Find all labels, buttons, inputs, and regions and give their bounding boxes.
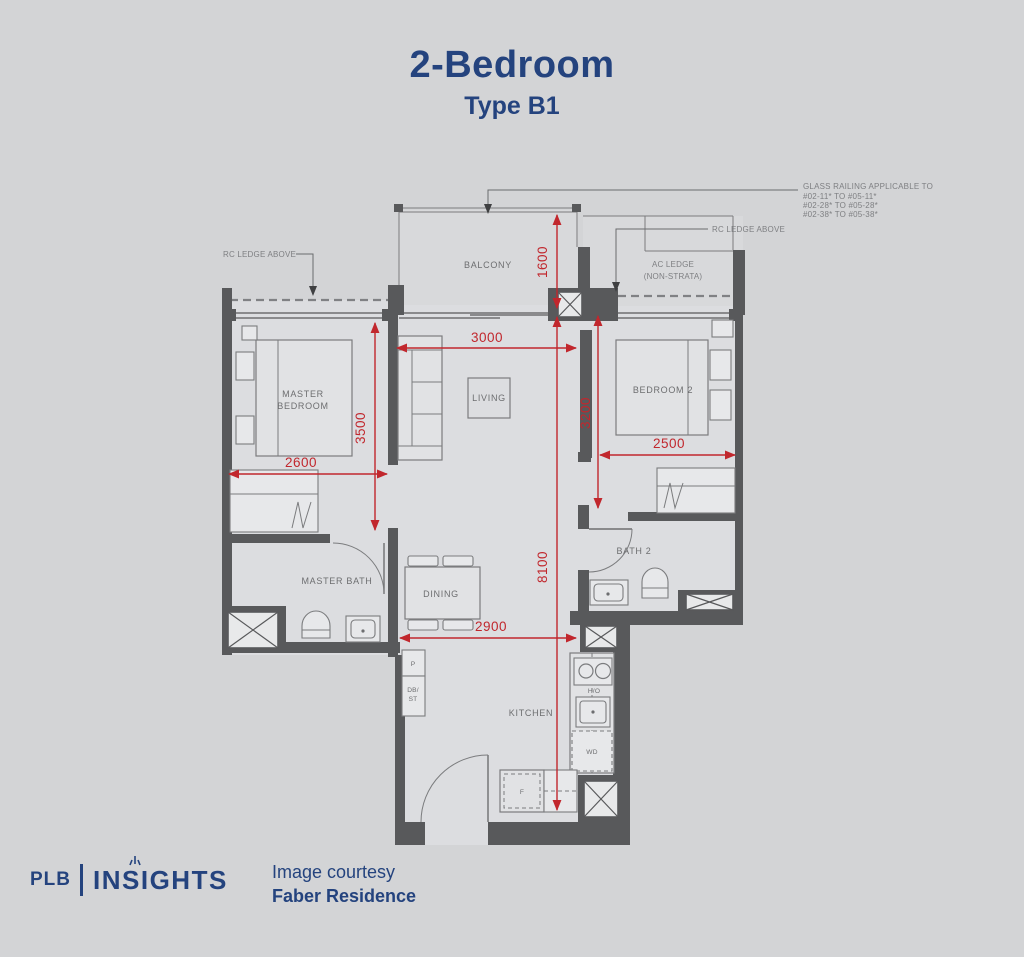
- toilet: [302, 611, 330, 638]
- label-fridge: F: [520, 789, 524, 796]
- courtesy-line2: Faber Residence: [272, 885, 416, 909]
- svg-text:BEDROOM: BEDROOM: [277, 401, 328, 411]
- shaft-box: [585, 626, 617, 648]
- courtesy-line1: Image courtesy: [272, 861, 416, 885]
- label-washer-dryer: WD: [586, 749, 597, 756]
- svg-text:#02-38* TO #05-38*: #02-38* TO #05-38*: [803, 210, 878, 219]
- room-label-master-bath: MASTER BATH: [301, 576, 372, 586]
- dim-master-depth: 3500: [353, 412, 368, 444]
- room-label-bedroom2: BEDROOM 2: [633, 385, 693, 395]
- room-label-master-bedroom: MASTER: [282, 389, 324, 399]
- dim-bedroom2-width: 2500: [653, 436, 685, 451]
- room-label-balcony: BALCONY: [464, 260, 512, 270]
- footer-brand: PLB INSIGHTS: [30, 864, 228, 896]
- glass-railing-note: GLASS RAILING APPLICABLE TO: [803, 182, 933, 191]
- dim-bedroom2-depth: 3200: [578, 397, 593, 429]
- rc-ledge-note-right: RC LEDGE ABOVE: [712, 225, 785, 234]
- floor-plan: GLASS RAILING APPLICABLE TO #02-11* TO #…: [0, 0, 1024, 957]
- label-hob: H/O: [588, 688, 600, 695]
- brand-divider-line: [80, 864, 83, 896]
- brand-name: INSIGHTS: [93, 865, 228, 896]
- room-label-kitchen: KITCHEN: [509, 708, 553, 718]
- shaft-box: [686, 594, 733, 610]
- shaft-box: [584, 781, 618, 817]
- room-label-bath2: BATH 2: [616, 546, 651, 556]
- room-label-living: LIVING: [472, 393, 506, 403]
- dim-living-width: 3000: [471, 330, 503, 345]
- shaft-box: [228, 612, 278, 648]
- dim-dining-width: 2900: [475, 619, 507, 634]
- master-wardrobe: [230, 470, 318, 532]
- svg-text:#02-28* TO #05-28*: #02-28* TO #05-28*: [803, 201, 878, 210]
- room-label-dining: DINING: [423, 589, 459, 599]
- dim-master-width: 2600: [285, 455, 317, 470]
- label-pantry: P: [411, 661, 416, 668]
- page-root: 2-Bedroom Type B1: [0, 0, 1024, 957]
- svg-text:#02-11* TO #05-11*: #02-11* TO #05-11*: [803, 192, 877, 201]
- svg-text:(NON-STRATA): (NON-STRATA): [644, 272, 703, 281]
- bedroom2-wardrobe: [657, 468, 735, 513]
- ac-ledge-note: AC LEDGE: [652, 260, 694, 269]
- brand-prefix: PLB: [30, 869, 71, 891]
- sofa: [398, 336, 442, 460]
- label-db: DB/: [407, 687, 419, 694]
- dim-balcony-depth: 1600: [535, 246, 550, 278]
- image-courtesy: Image courtesy Faber Residence: [272, 861, 416, 909]
- toilet: [642, 568, 668, 598]
- sparkle-icon: [128, 856, 142, 866]
- dim-overall-depth: 8100: [535, 551, 550, 583]
- shaft-box: [558, 292, 582, 317]
- svg-text:ST: ST: [409, 696, 418, 703]
- rc-ledge-note-left: RC LEDGE ABOVE: [223, 250, 296, 259]
- plb-insights-logo: PLB INSIGHTS: [30, 864, 228, 896]
